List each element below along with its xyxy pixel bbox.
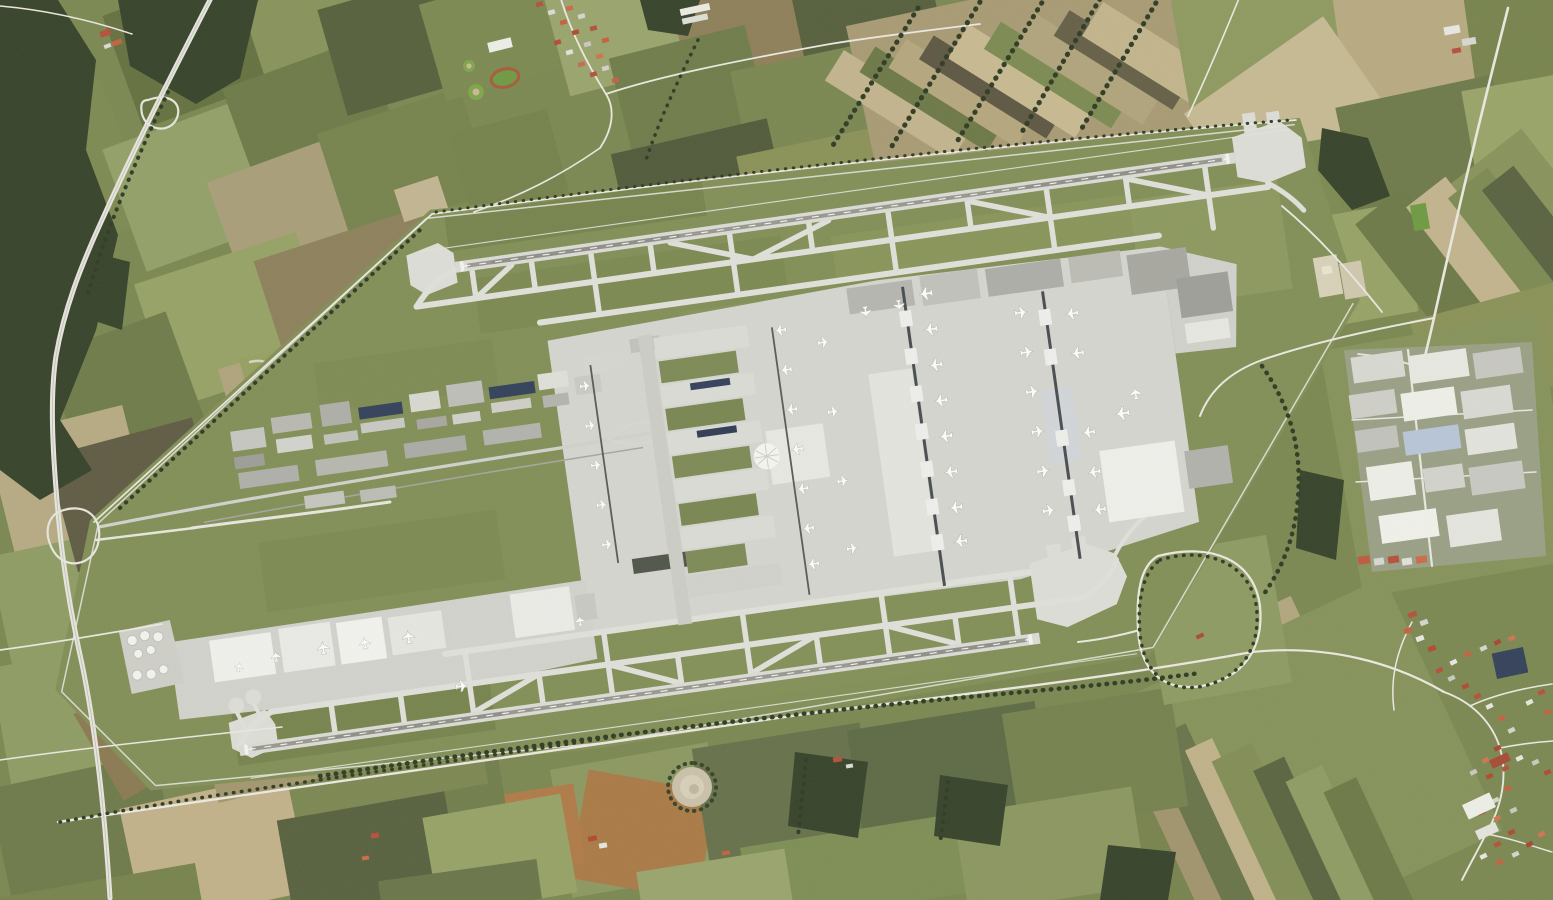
aerial-scene [0, 0, 1553, 900]
aerial-photo-figure [0, 0, 1553, 900]
photo-grain-overlay [0, 0, 1553, 900]
satellite-image [0, 0, 1553, 900]
